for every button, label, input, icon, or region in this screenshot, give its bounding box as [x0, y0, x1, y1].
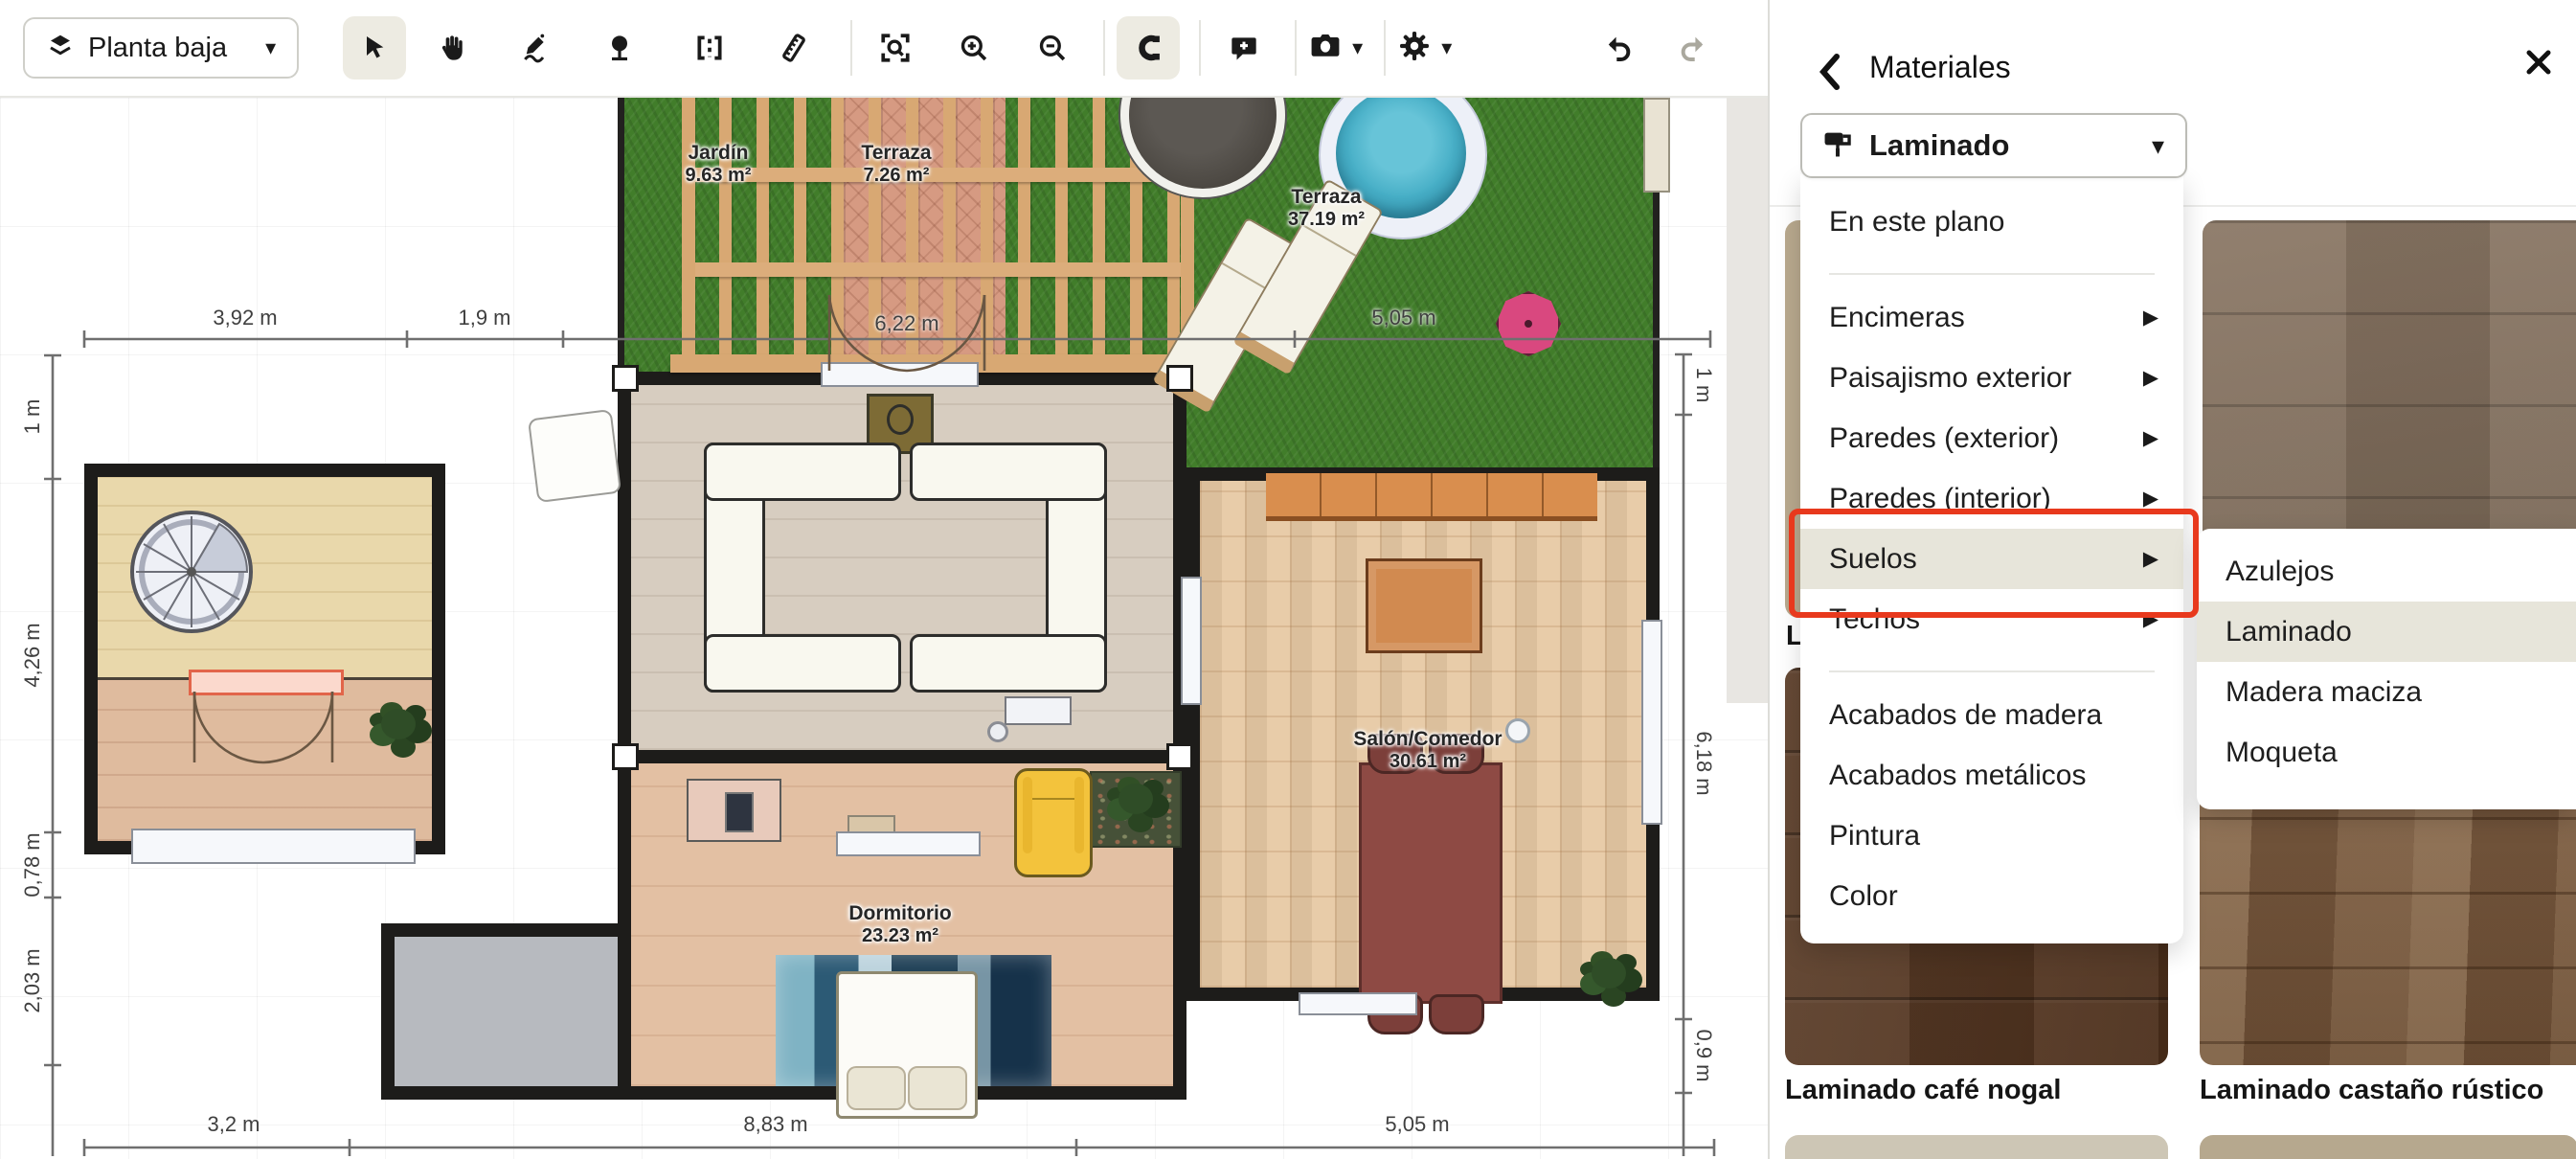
room-label-jardin: Jardín9.63 m²	[686, 142, 752, 187]
dining-chair[interactable]	[1429, 994, 1484, 1034]
submenu-item-laminado[interactable]: Laminado	[2197, 602, 2576, 662]
ruler-icon	[779, 33, 809, 63]
select-tool-button[interactable]	[343, 16, 406, 80]
spiral-staircase[interactable]	[128, 509, 255, 635]
top-toolbar: Planta baja ▾	[0, 0, 1768, 98]
category-menu: En este plano Encimeras▶ Paisajismo exte…	[1800, 174, 2183, 943]
menu-item-paredes-interior[interactable]: Paredes (interior)▶	[1800, 468, 2183, 529]
wall-tool-icon	[694, 33, 725, 63]
floor-selector-label: Planta baja	[88, 33, 227, 64]
chevron-right-icon: ▶	[2143, 366, 2158, 390]
swatch-label: Laminado café nogal	[1785, 1075, 2061, 1106]
zoom-in-icon	[958, 32, 990, 64]
highlighted-door-lintel[interactable]	[189, 670, 344, 695]
dim-label: 5,05 m	[1371, 306, 1435, 330]
dim-label: 1 m	[20, 399, 45, 435]
zoom-out-button[interactable]	[1021, 16, 1084, 80]
chevron-down-icon: ▾	[1352, 37, 1363, 58]
add-note-icon	[1229, 33, 1259, 63]
zoom-in-button[interactable]	[942, 16, 1006, 80]
menu-separator	[1829, 670, 2155, 672]
floor-selector[interactable]: Planta baja ▾	[23, 17, 299, 79]
wall-handle[interactable]	[612, 743, 639, 770]
room-label-terraza-pergola: Terraza7.26 m²	[861, 142, 931, 187]
pan-tool-button[interactable]	[419, 16, 483, 80]
window[interactable]	[836, 831, 981, 856]
chevron-right-icon: ▶	[2143, 487, 2158, 511]
menu-item-en-este-plano[interactable]: En este plano	[1800, 192, 2183, 252]
wall-handle[interactable]	[612, 365, 639, 392]
swatch-label: Laminado castaño rústico	[2200, 1075, 2543, 1106]
gear-icon	[1397, 29, 1432, 68]
yellow-armchair[interactable]	[1014, 768, 1093, 877]
camera-menu[interactable]: ▾	[1308, 29, 1363, 68]
desk[interactable]	[687, 779, 781, 842]
category-dropdown[interactable]: Laminado ▾	[1800, 113, 2187, 178]
floorplan-canvas[interactable]: Jardín9.63 m² Terraza7.26 m² Terraza37.1…	[0, 98, 1768, 1159]
chevron-left-icon	[1818, 54, 1841, 90]
dim-label: 5,05 m	[1385, 1112, 1449, 1137]
menu-separator	[1829, 273, 2155, 275]
chevron-down-icon: ▾	[265, 37, 276, 58]
material-swatch-partial[interactable]	[1785, 220, 1800, 618]
zoom-fit-icon	[879, 32, 912, 64]
window[interactable]	[1641, 620, 1662, 825]
chevron-right-icon: ▶	[2143, 607, 2158, 631]
potted-plant[interactable]	[381, 709, 416, 739]
wall-handle[interactable]	[1166, 743, 1193, 770]
menu-item-acabados-madera[interactable]: Acabados de madera	[1800, 685, 2183, 745]
potted-plant[interactable]	[1592, 958, 1626, 989]
entry-room-floor	[98, 679, 432, 841]
zoom-out-icon	[1036, 32, 1069, 64]
floor-lamp[interactable]	[987, 721, 1008, 742]
undo-icon	[1601, 32, 1634, 64]
redo-button[interactable]	[1662, 16, 1726, 80]
draw-pencil-icon	[520, 33, 551, 63]
pergola-beam	[682, 262, 1194, 277]
room-label-terraza: Terraza37.19 m²	[1288, 186, 1365, 231]
submenu-item-madera-maciza[interactable]: Madera maciza	[2197, 662, 2576, 722]
select-tool-icon	[359, 33, 390, 63]
back-button[interactable]	[1818, 54, 1841, 95]
window[interactable]	[1299, 992, 1417, 1015]
magnet-snap-icon	[1132, 32, 1164, 64]
sofa-section[interactable]	[910, 443, 1107, 501]
undo-button[interactable]	[1586, 16, 1649, 80]
camera-icon	[1308, 29, 1343, 68]
submenu-item-moqueta[interactable]: Moqueta	[2197, 722, 2576, 783]
draw-tool-button[interactable]	[504, 16, 567, 80]
potted-plant[interactable]	[1119, 784, 1153, 814]
bed[interactable]	[836, 971, 978, 1119]
panel-title: Materiales	[1869, 50, 2011, 85]
garden-gate[interactable]	[1643, 98, 1670, 193]
dining-table[interactable]	[1359, 762, 1503, 1004]
dim-label: 4,26 m	[20, 623, 45, 687]
dim-label: 2,03 m	[20, 948, 45, 1012]
chevron-right-icon: ▶	[2143, 306, 2158, 330]
settings-menu[interactable]: ▾	[1397, 29, 1452, 68]
measure-tool-button[interactable]	[762, 16, 825, 80]
menu-item-encimeras[interactable]: Encimeras▶	[1800, 287, 2183, 348]
redo-icon	[1678, 32, 1710, 64]
dim-label-door: 6,22 m	[874, 311, 938, 336]
sofa-section[interactable]	[910, 634, 1107, 693]
menu-item-paisajismo-exterior[interactable]: Paisajismo exterior▶	[1800, 348, 2183, 408]
door-leaf[interactable]	[528, 409, 621, 503]
menu-item-suelos[interactable]: Suelos▶	[1800, 529, 2183, 589]
side-table[interactable]	[1005, 696, 1072, 725]
chevron-down-icon: ▾	[1441, 37, 1452, 58]
garden-wall-left	[618, 98, 624, 385]
window[interactable]	[131, 829, 416, 864]
room-label-salon: Salón/Comedor30.61 m²	[1353, 728, 1502, 773]
sofa-section[interactable]	[704, 443, 901, 501]
paint-roller-icon	[1821, 127, 1854, 165]
pan-hand-icon	[436, 33, 466, 63]
layers-icon	[46, 32, 75, 65]
close-button[interactable]	[2524, 48, 2553, 81]
chevron-right-icon: ▶	[2143, 547, 2158, 571]
menu-item-pintura[interactable]: Pintura	[1800, 806, 2183, 866]
material-swatch[interactable]	[2200, 1135, 2576, 1159]
menu-item-color[interactable]: Color	[1800, 866, 2183, 926]
dim-label: 1 m	[1691, 368, 1716, 403]
dim-label: 1,9 m	[458, 306, 510, 330]
dim-label: 3,2 m	[207, 1112, 260, 1137]
window[interactable]	[1181, 577, 1202, 705]
dim-label: 8,83 m	[743, 1112, 807, 1137]
menu-item-techos[interactable]: Techos▶	[1800, 589, 2183, 649]
chevron-down-icon: ▾	[2152, 133, 2164, 158]
plant-tool-button[interactable]	[588, 16, 651, 80]
plant-tool-icon	[604, 33, 635, 63]
menu-item-acabados-metalicos[interactable]: Acabados metálicos	[1800, 745, 2183, 806]
add-note-button[interactable]	[1212, 16, 1276, 80]
menu-item-paredes-exterior[interactable]: Paredes (exterior)▶	[1800, 408, 2183, 468]
sofa-section[interactable]	[704, 634, 901, 693]
floorplanner-app: Planta baja ▾	[0, 0, 2576, 1159]
window[interactable]	[821, 362, 979, 387]
pergola-post	[682, 98, 695, 373]
category-dropdown-label: Laminado	[1869, 128, 2009, 163]
swatch-label-partial: L	[1786, 621, 1800, 652]
canvas-edge-strip	[1727, 98, 1768, 703]
wall-handle[interactable]	[1166, 365, 1193, 392]
umbrella-pole	[1525, 320, 1532, 328]
zoom-fit-button[interactable]	[864, 16, 927, 80]
wall-tool-button[interactable]	[678, 16, 741, 80]
dim-label: 3,92 m	[213, 306, 277, 330]
dim-label: 6,18 m	[1691, 731, 1716, 795]
close-icon	[2524, 48, 2553, 77]
dim-label: 0,78 m	[20, 832, 45, 897]
materials-panel: Materiales L Laminado café nogal Laminad…	[1768, 0, 2576, 1159]
material-swatch[interactable]	[1785, 1135, 2168, 1159]
snap-magnet-button[interactable]	[1117, 16, 1180, 80]
wooden-table[interactable]	[1366, 558, 1482, 653]
dim-label: 0,9 m	[1691, 1029, 1716, 1081]
submenu-item-azulejos[interactable]: Azulejos	[2197, 541, 2576, 602]
ceiling-light	[1505, 718, 1530, 743]
room-label-dormitorio: Dormitorio23.23 m²	[848, 902, 951, 947]
chevron-right-icon: ▶	[2143, 426, 2158, 450]
floors-submenu: Azulejos Laminado Madera maciza Moqueta	[2197, 529, 2576, 809]
pergola-beam	[682, 168, 1194, 182]
